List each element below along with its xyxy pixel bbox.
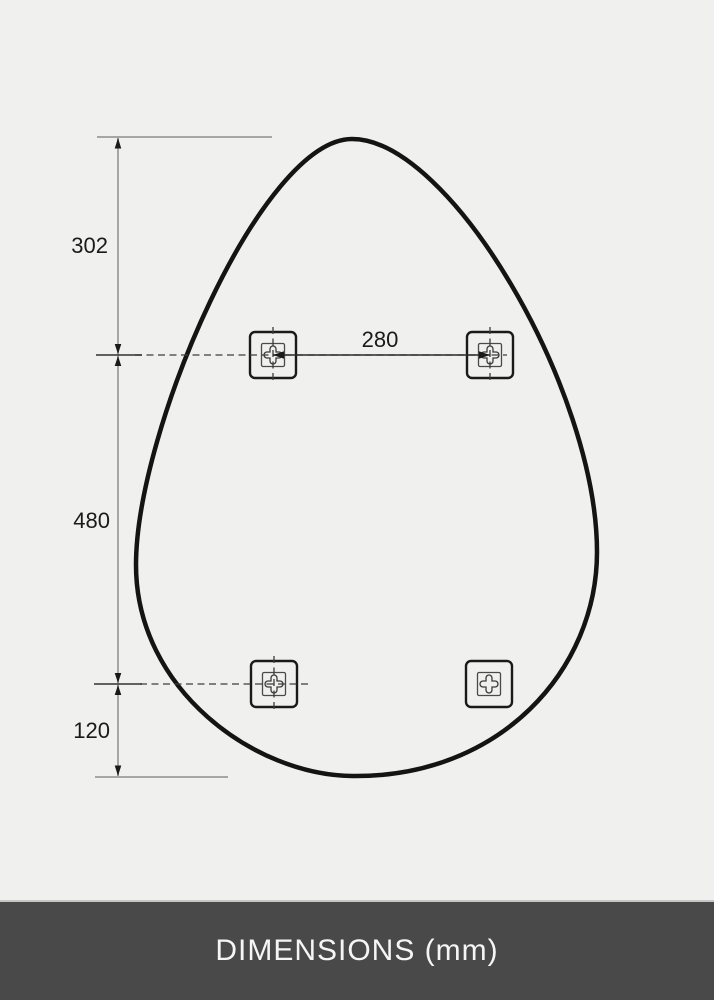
dim-label-top-offset: 302 (71, 233, 108, 258)
footer-bar: DIMENSIONS (mm) (0, 900, 714, 1000)
vertical-arrow-bottom (115, 766, 122, 777)
dim-label-bottom-offset: 120 (73, 718, 110, 743)
vertical-arrow-top (115, 138, 122, 149)
mirror-outline (136, 139, 597, 776)
vertical-arrow-lower-row-above (115, 673, 122, 683)
mounting-bracket-icon-bottom-right (466, 661, 512, 707)
dimension-diagram: 302 480 120 280 (0, 0, 714, 900)
diagram-area: 302 480 120 280 (0, 0, 714, 900)
footer-title: DIMENSIONS (mm) (215, 934, 498, 968)
vertical-arrow-lower-row-below (115, 685, 122, 695)
dim-label-vertical-spacing: 480 (73, 508, 110, 533)
vertical-arrow-upper-row-below (115, 356, 122, 366)
centerlines (135, 327, 507, 712)
vertical-arrow-upper-row-above (115, 344, 122, 354)
dimension-sheet: 302 480 120 280 DIMENSIONS (mm) (0, 0, 714, 1000)
dim-label-horizontal-spacing: 280 (362, 327, 399, 352)
